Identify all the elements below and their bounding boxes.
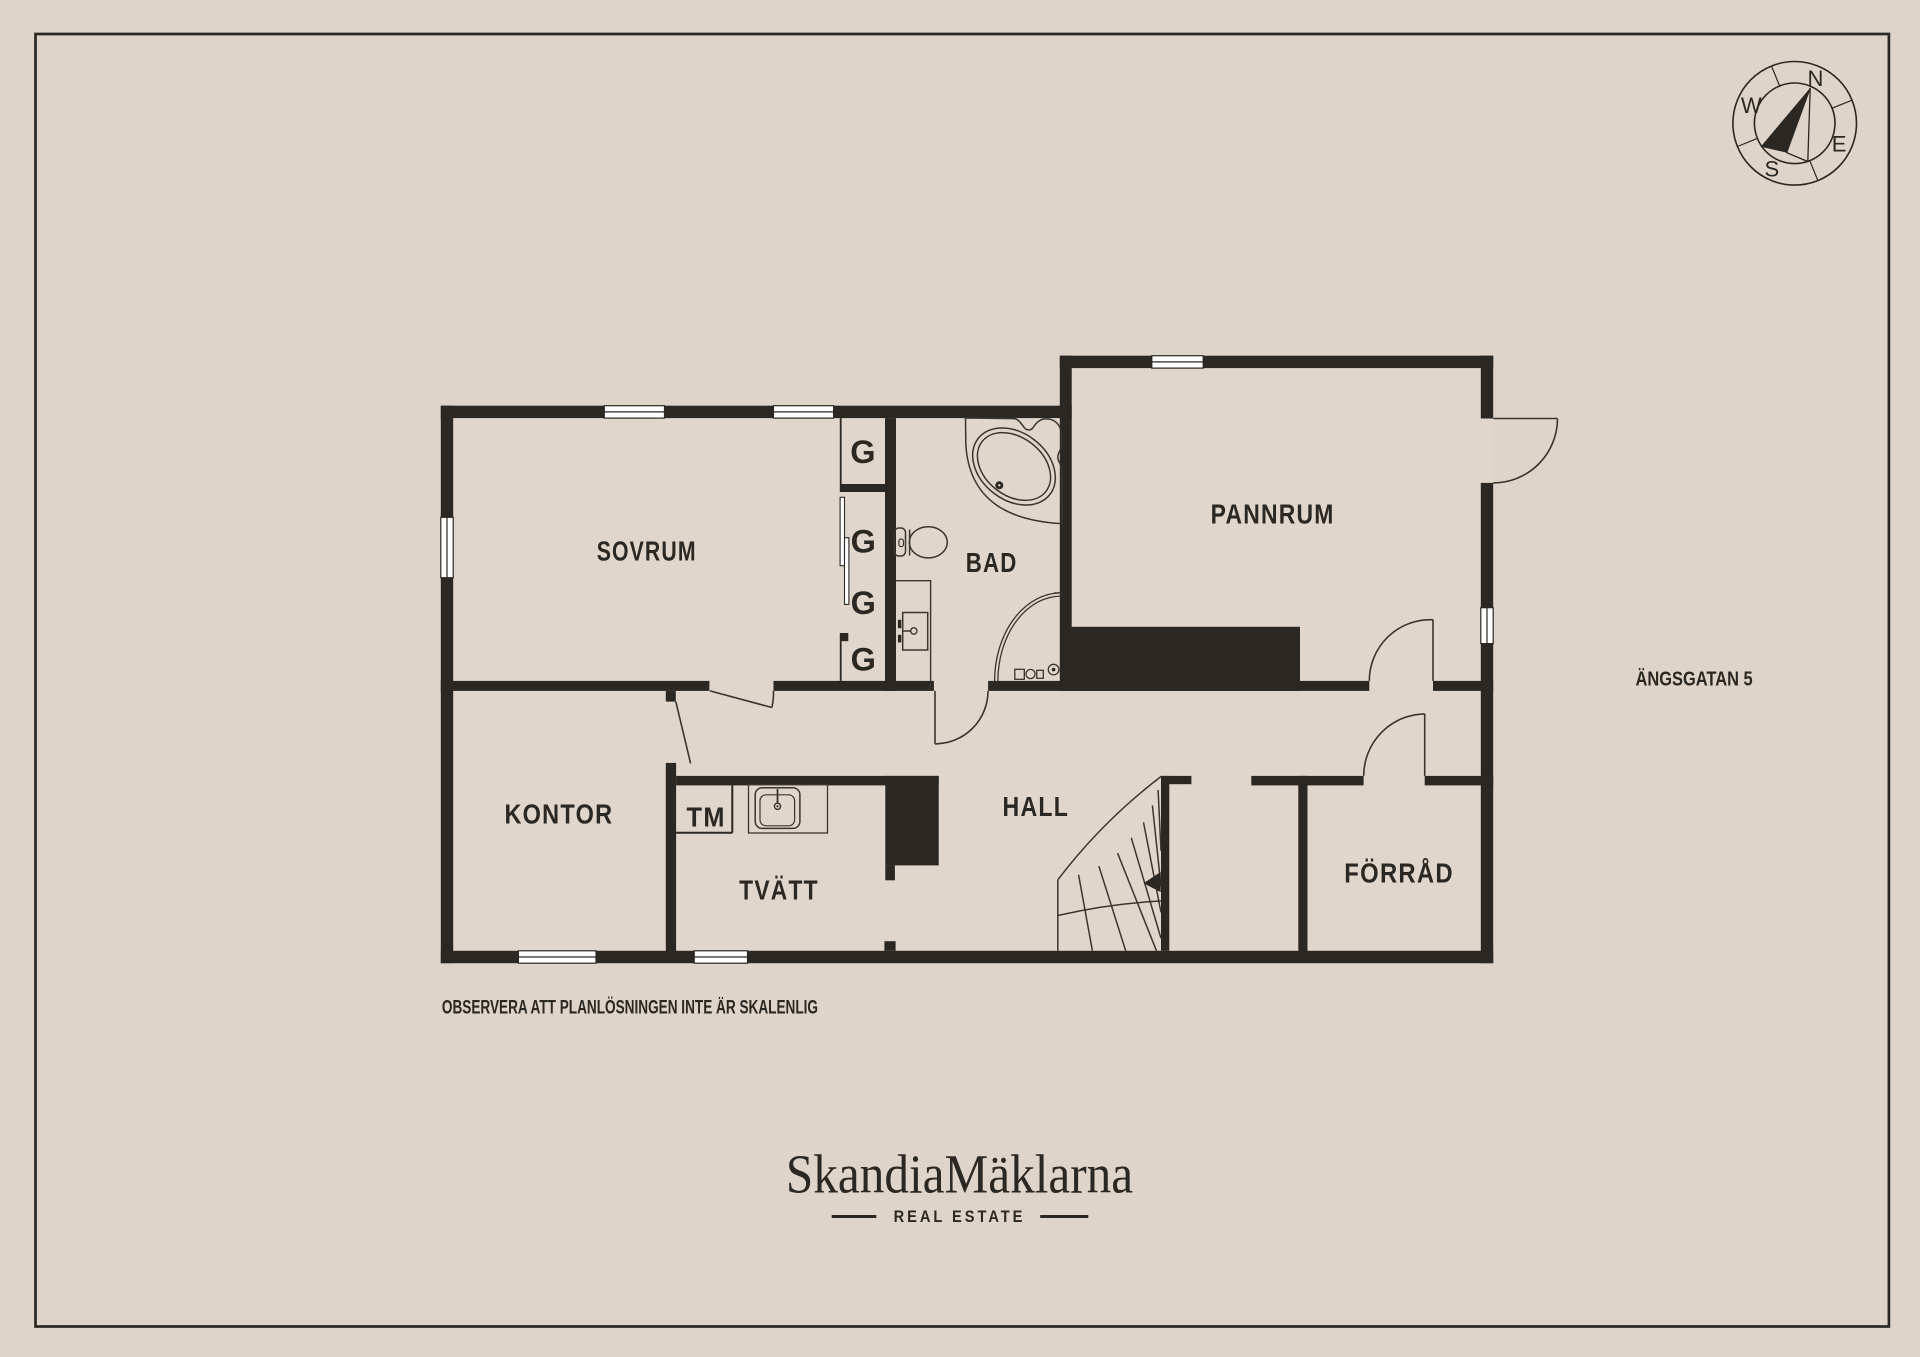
svg-text:W: W	[1741, 93, 1762, 118]
svg-text:KONTOR: KONTOR	[504, 798, 613, 829]
svg-text:REAL ESTATE: REAL ESTATE	[894, 1207, 1026, 1226]
svg-text:E: E	[1832, 131, 1847, 156]
svg-text:G: G	[851, 642, 878, 678]
svg-text:G: G	[851, 524, 878, 560]
svg-text:OBSERVERA ATT PLANLÖSNINGEN IN: OBSERVERA ATT PLANLÖSNINGEN INTE ÄR SKAL…	[442, 996, 818, 1019]
svg-text:N: N	[1808, 66, 1824, 91]
svg-text:SOVRUM: SOVRUM	[597, 536, 697, 567]
svg-text:G: G	[850, 434, 877, 470]
svg-text:G: G	[851, 585, 878, 621]
svg-text:ÄNGSGATAN 5: ÄNGSGATAN 5	[1636, 667, 1753, 690]
svg-text:BAD: BAD	[966, 547, 1018, 578]
svg-text:TVÄTT: TVÄTT	[739, 875, 819, 906]
svg-text:S: S	[1765, 157, 1780, 182]
svg-text:SkandiaMäklarna: SkandiaMäklarna	[786, 1143, 1133, 1204]
svg-text:FÖRRÅD: FÖRRÅD	[1344, 857, 1454, 888]
svg-text:HALL: HALL	[1003, 791, 1070, 822]
svg-text:TM: TM	[687, 802, 726, 833]
svg-text:PANNRUM: PANNRUM	[1211, 498, 1335, 529]
